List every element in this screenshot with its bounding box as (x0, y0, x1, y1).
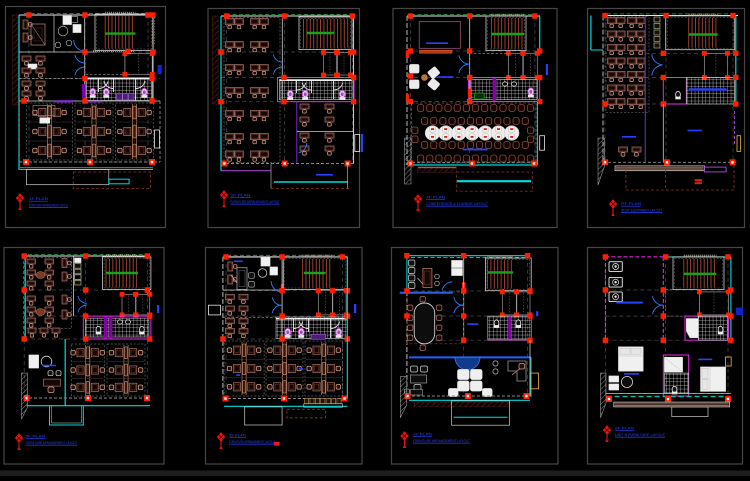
svg-text:RF PLAN: RF PLAN (621, 201, 641, 206)
svg-text:4F PLAN: 4F PLAN (426, 195, 445, 200)
svg-text:ROOF EQUIPMENT LAYOUT: ROOF EQUIPMENT LAYOUT (621, 207, 662, 212)
svg-text:FURNITURE ARRANGEMENT LAYOUT: FURNITURE ARRANGEMENT LAYOUT (413, 438, 470, 443)
svg-text:5F PLAN: 5F PLAN (25, 434, 45, 439)
svg-text:UNIT B FURNITURE LAYOUT: UNIT B FURNITURE LAYOUT (615, 432, 666, 437)
svg-text:FURNITURE ARRANGEMENT LAYOUT: FURNITURE ARRANGEMENT LAYOUT (229, 439, 275, 444)
svg-text:FURNITURE ARRANGEMENT LAYOUT: FURNITURE ARRANGEMENT LAYOUT (25, 440, 77, 445)
svg-text:FURNITURE ARRANGEMENT LAYOUT: FURNITURE ARRANGEMENT LAYOUT (29, 202, 68, 207)
svg-text:8F PLAN: 8F PLAN (615, 426, 634, 431)
svg-text:6F PLAN: 6F PLAN (229, 433, 246, 438)
svg-text:1F PLAN: 1F PLAN (29, 196, 48, 201)
svg-text:2F PLAN: 2F PLAN (231, 193, 251, 198)
svg-text:7F PLAN: 7F PLAN (413, 432, 432, 437)
svg-text:FURNITURE ARRANGEMENT LAYOUT: FURNITURE ARRANGEMENT LAYOUT (231, 199, 280, 204)
svg-text:CONFERENCE & LOUNGE LAYOUT: CONFERENCE & LOUNGE LAYOUT (426, 201, 489, 206)
